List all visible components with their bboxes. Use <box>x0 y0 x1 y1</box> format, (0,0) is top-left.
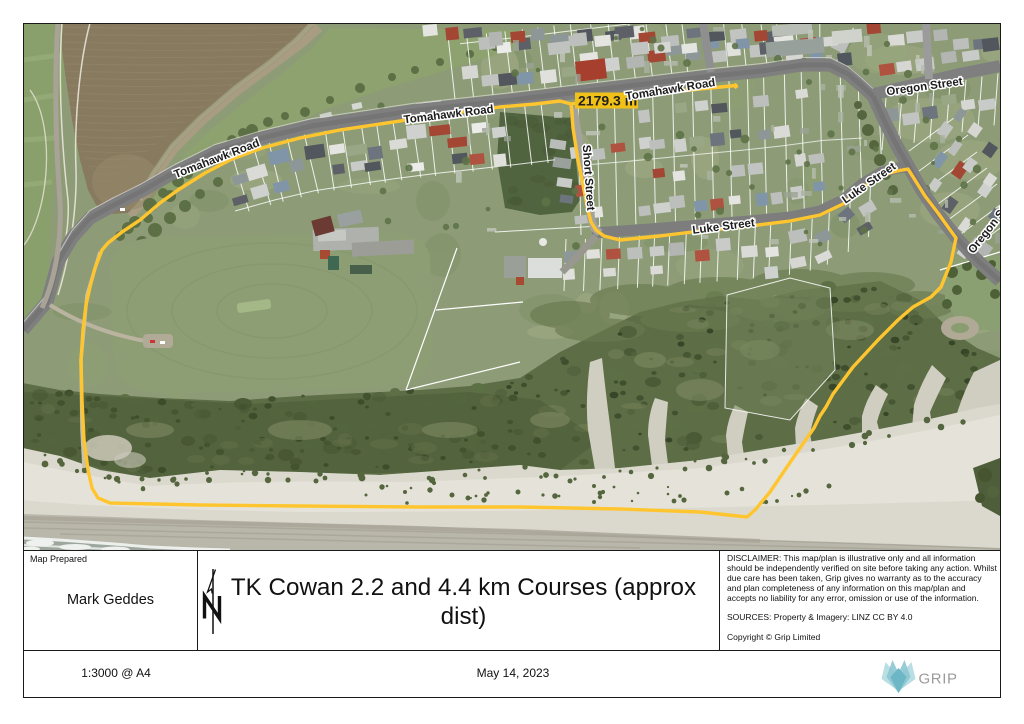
svg-text:GRIP: GRIP <box>919 671 958 688</box>
